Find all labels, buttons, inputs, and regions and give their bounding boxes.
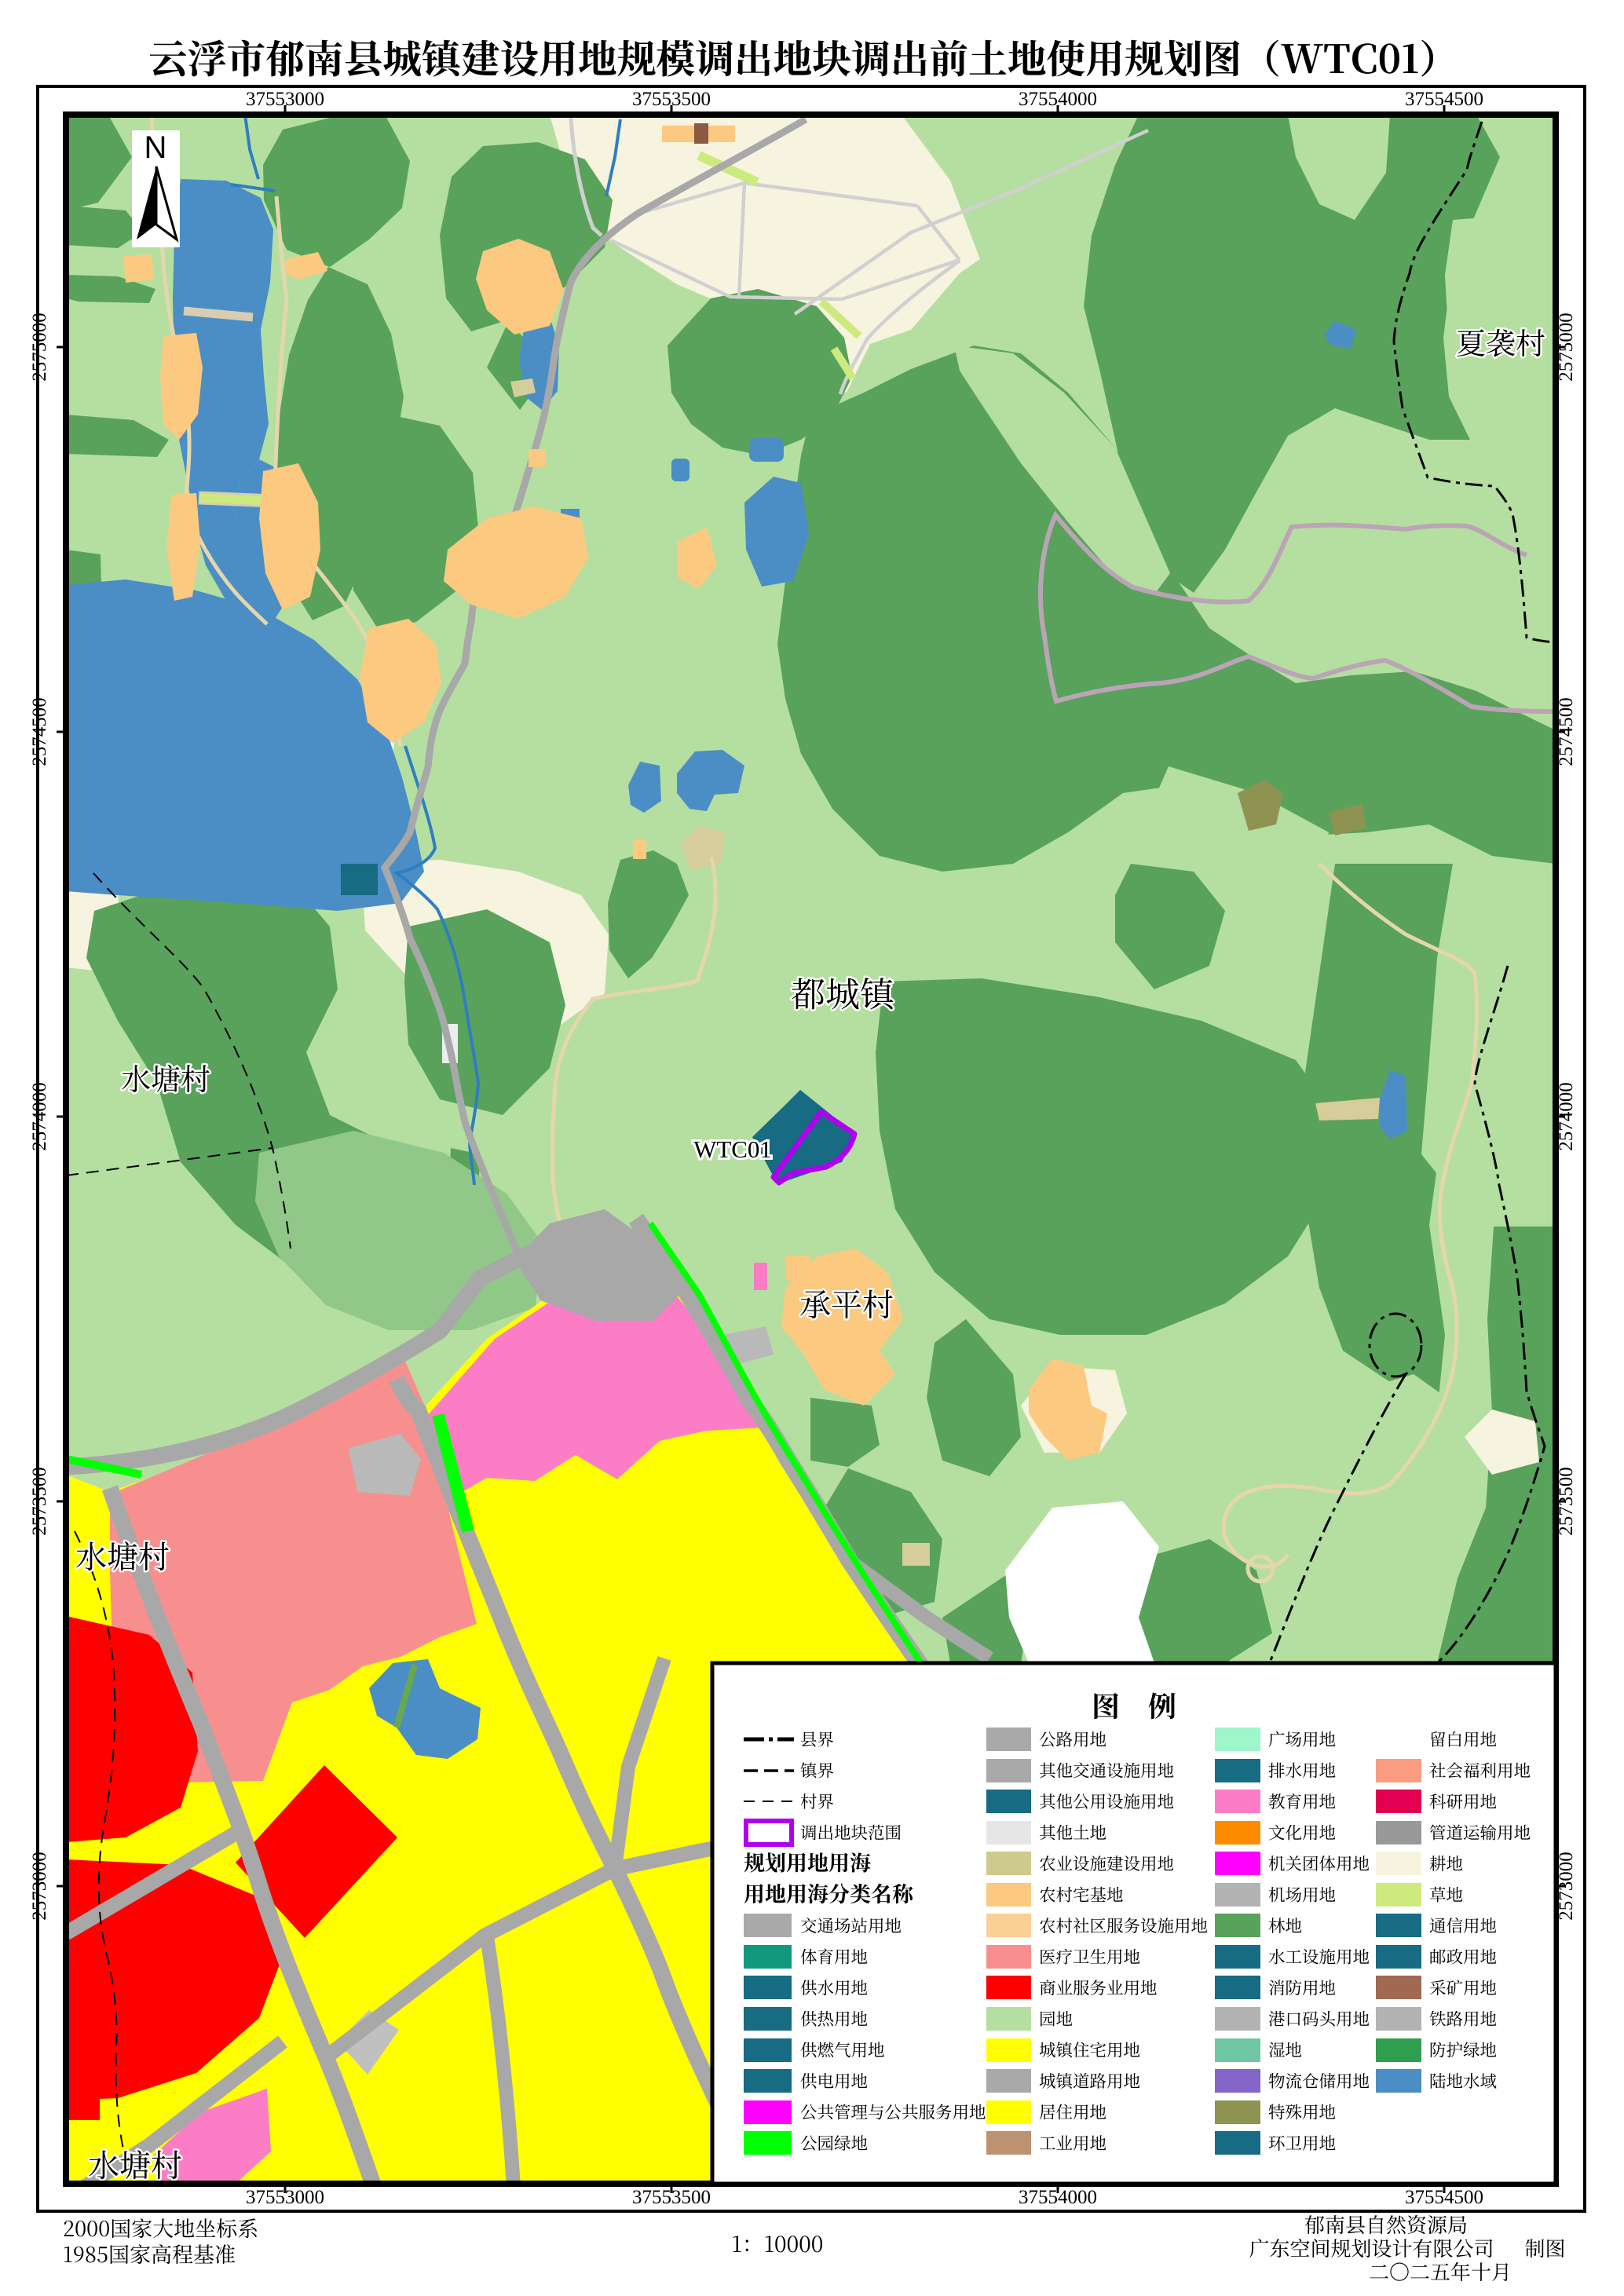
svg-text:37553500: 37553500: [632, 2187, 711, 2208]
svg-text:2574500: 2574500: [1556, 697, 1577, 766]
svg-text:37554000: 37554000: [1019, 2187, 1097, 2208]
svg-text:2575000: 2575000: [29, 313, 50, 382]
svg-text:2574500: 2574500: [29, 697, 50, 766]
svg-text:37553000: 37553000: [246, 2187, 324, 2208]
svg-text:37554000: 37554000: [1019, 89, 1097, 110]
svg-text:37554500: 37554500: [1405, 2187, 1483, 2208]
svg-text:2573000: 2573000: [1556, 1852, 1577, 1921]
svg-text:37553500: 37553500: [632, 89, 711, 110]
svg-text:2575000: 2575000: [1556, 313, 1577, 382]
svg-text:2574000: 2574000: [29, 1082, 50, 1151]
svg-text:2574000: 2574000: [1556, 1082, 1577, 1151]
svg-text:37553000: 37553000: [246, 89, 324, 110]
svg-text:WTC01: WTC01: [693, 1135, 772, 1163]
svg-text:2573500: 2573500: [29, 1467, 50, 1536]
svg-text:2573000: 2573000: [29, 1852, 50, 1921]
svg-text:37554500: 37554500: [1405, 89, 1483, 110]
svg-text:2573500: 2573500: [1556, 1467, 1577, 1536]
svg-text:N: N: [144, 130, 167, 165]
